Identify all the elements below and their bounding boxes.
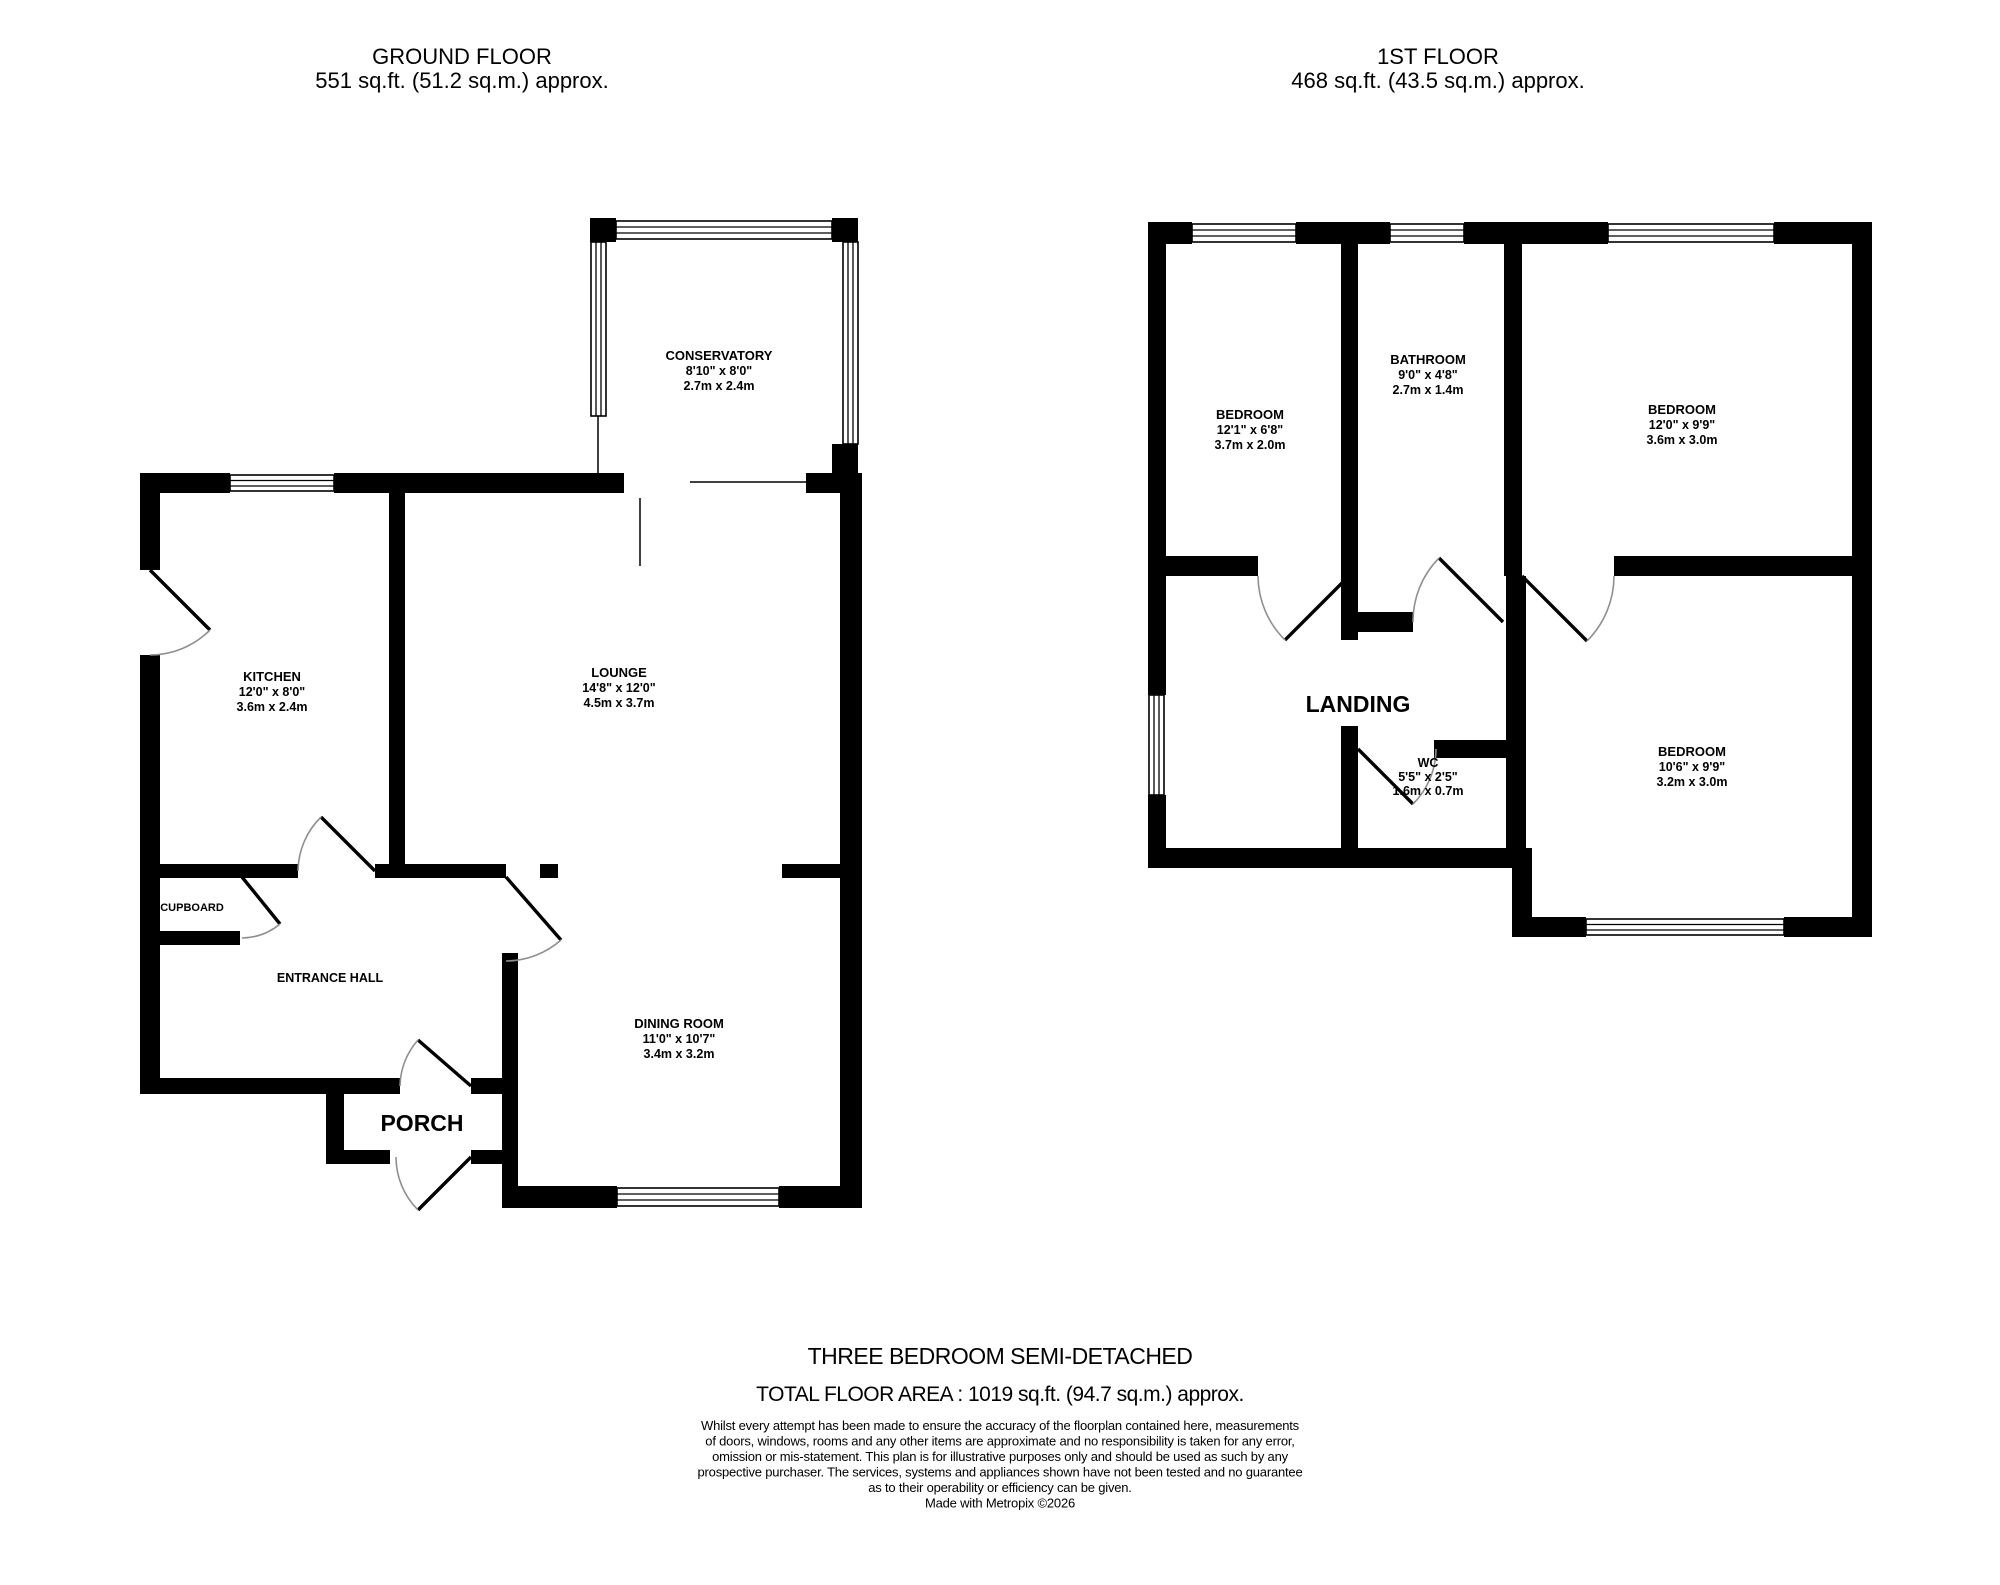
- window: [843, 242, 858, 444]
- svg-text:KITCHEN: KITCHEN: [243, 669, 301, 684]
- disclaimer-line: of doors, windows, rooms and any other i…: [705, 1434, 1294, 1449]
- room-label-kitchen: KITCHEN 12'0" x 8'0" 3.6m x 2.4m: [237, 669, 308, 714]
- wall: [782, 864, 840, 878]
- svg-text:12'0" x 9'9": 12'0" x 9'9": [1649, 418, 1716, 432]
- wall: [1166, 556, 1258, 576]
- window: [616, 221, 832, 239]
- svg-text:3.7m x 2.0m: 3.7m x 2.0m: [1215, 438, 1286, 452]
- wall: [140, 1078, 400, 1094]
- svg-text:3.4m x 3.2m: 3.4m x 3.2m: [644, 1047, 715, 1061]
- wall: [140, 931, 240, 945]
- wall: [1464, 222, 1608, 244]
- svg-text:5'5" x 2'5": 5'5" x 2'5": [1398, 770, 1458, 784]
- room-label-dining-room: DINING ROOM 11'0" x 10'7" 3.4m x 3.2m: [634, 1016, 724, 1061]
- property-type: THREE BEDROOM SEMI-DETACHED: [808, 1343, 1193, 1369]
- wall: [1852, 244, 1872, 937]
- window: [617, 1188, 779, 1206]
- wall: [1358, 612, 1413, 632]
- svg-text:LOUNGE: LOUNGE: [591, 665, 647, 680]
- svg-text:2.7m x 1.4m: 2.7m x 1.4m: [1393, 383, 1464, 397]
- wall: [502, 1186, 617, 1208]
- wall: [779, 1186, 862, 1208]
- room-label-cupboard: CUPBOARD: [160, 902, 224, 914]
- wall: [1506, 576, 1526, 848]
- svg-text:CONSERVATORY: CONSERVATORY: [666, 348, 773, 363]
- wall: [1148, 848, 1532, 868]
- disclaimer-line: as to their operability or efficiency ca…: [868, 1480, 1131, 1495]
- svg-text:3.6m x 3.0m: 3.6m x 3.0m: [1647, 433, 1718, 447]
- window: [1586, 919, 1784, 935]
- disclaimer-line: prospective purchaser. The services, sys…: [698, 1465, 1303, 1480]
- room-label-bedroom3: BEDROOM 10'6" x 9'9" 3.2m x 3.0m: [1657, 744, 1728, 789]
- wall: [1512, 848, 1532, 917]
- room-label-bedroom2: BEDROOM 12'0" x 9'9" 3.6m x 3.0m: [1647, 402, 1718, 447]
- window: [1149, 695, 1164, 795]
- svg-text:14'8" x 12'0": 14'8" x 12'0": [582, 681, 655, 695]
- disclaimer-line: omission or mis-statement. This plan is …: [712, 1449, 1289, 1464]
- first-floor-area: 468 sq.ft. (43.5 sq.m.) approx.: [1291, 68, 1584, 93]
- window: [230, 475, 334, 491]
- wall: [1774, 222, 1872, 244]
- wall: [140, 864, 298, 878]
- wall: [1614, 556, 1872, 576]
- wall: [840, 473, 862, 1208]
- wall: [1296, 222, 1390, 244]
- svg-text:11'0" x 10'7": 11'0" x 10'7": [643, 1032, 716, 1046]
- total-floor-area: TOTAL FLOOR AREA : 1019 sq.ft. (94.7 sq.…: [756, 1383, 1244, 1406]
- room-label-bathroom: BATHROOM 9'0" x 4'8" 2.7m x 1.4m: [1390, 352, 1466, 397]
- wall: [832, 218, 858, 242]
- wall: [832, 444, 858, 473]
- room-label-entrance-hall: ENTRANCE HALL: [277, 971, 384, 985]
- disclaimer-line: Whilst every attempt has been made to en…: [701, 1418, 1300, 1433]
- svg-text:4.5m x 3.7m: 4.5m x 3.7m: [584, 696, 655, 710]
- wall: [471, 1078, 502, 1094]
- wall: [1341, 726, 1358, 848]
- window: [1192, 224, 1296, 242]
- room-label-lounge: LOUNGE 14'8" x 12'0" 4.5m x 3.7m: [582, 665, 655, 710]
- svg-text:12'1" x 6'8": 12'1" x 6'8": [1217, 423, 1284, 437]
- svg-text:WC: WC: [1418, 756, 1439, 770]
- svg-text:DINING ROOM: DINING ROOM: [634, 1016, 724, 1031]
- floorplan-canvas: GROUND FLOOR 551 sq.ft. (51.2 sq.m.) app…: [0, 0, 2000, 1585]
- window: [591, 242, 606, 416]
- wall: [1148, 244, 1166, 695]
- svg-text:2.7m x 2.4m: 2.7m x 2.4m: [684, 379, 755, 393]
- wall: [326, 1150, 390, 1164]
- wall: [1148, 795, 1166, 848]
- svg-text:12'0" x 8'0": 12'0" x 8'0": [239, 685, 306, 699]
- window: [1608, 224, 1774, 242]
- room-label-landing: LANDING: [1306, 691, 1411, 717]
- ground-floor-title: GROUND FLOOR: [372, 44, 552, 69]
- svg-text:3.2m x 3.0m: 3.2m x 3.0m: [1657, 775, 1728, 789]
- window: [1390, 224, 1464, 242]
- svg-text:1.6m x 0.7m: 1.6m x 0.7m: [1393, 784, 1464, 798]
- wall: [1504, 244, 1522, 576]
- wall: [389, 493, 405, 864]
- svg-text:BEDROOM: BEDROOM: [1648, 402, 1716, 417]
- wall: [334, 473, 624, 493]
- svg-text:BATHROOM: BATHROOM: [1390, 352, 1466, 367]
- wall: [1784, 917, 1872, 937]
- wall: [140, 473, 230, 493]
- wall: [1148, 222, 1192, 244]
- wall: [1512, 917, 1586, 937]
- room-label-bedroom1: BEDROOM 12'1" x 6'8" 3.7m x 2.0m: [1215, 407, 1286, 452]
- svg-text:8'10" x 8'0": 8'10" x 8'0": [686, 364, 753, 378]
- wall: [471, 1150, 502, 1164]
- ground-floor-area: 551 sq.ft. (51.2 sq.m.) approx.: [315, 68, 608, 93]
- svg-text:9'0" x 4'8": 9'0" x 4'8": [1398, 368, 1458, 382]
- wall: [375, 864, 506, 878]
- svg-text:10'6" x 9'9": 10'6" x 9'9": [1659, 760, 1726, 774]
- room-label-porch: PORCH: [380, 1110, 463, 1136]
- wall: [140, 493, 160, 570]
- svg-text:BEDROOM: BEDROOM: [1658, 744, 1726, 759]
- svg-text:BEDROOM: BEDROOM: [1216, 407, 1284, 422]
- wall: [540, 864, 558, 878]
- svg-text:3.6m x 2.4m: 3.6m x 2.4m: [237, 700, 308, 714]
- first-floor-title: 1ST FLOOR: [1377, 44, 1499, 69]
- wall: [502, 953, 518, 1208]
- wall: [590, 218, 616, 242]
- wall: [1434, 740, 1506, 758]
- credit-line: Made with Metropix ©2026: [925, 1496, 1075, 1511]
